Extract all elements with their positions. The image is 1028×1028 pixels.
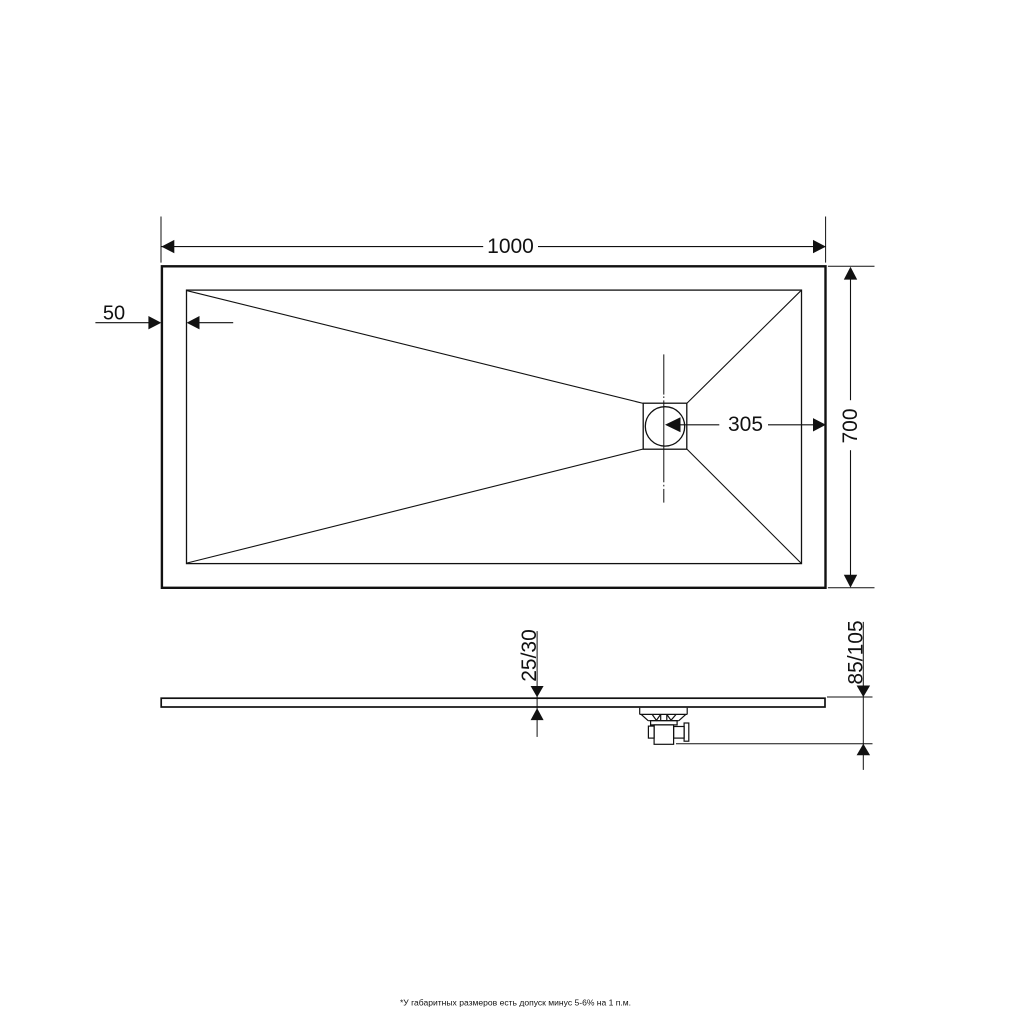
svg-text:305: 305 [728,413,763,436]
svg-text:85/105: 85/105 [845,620,868,684]
svg-text:50: 50 [103,303,125,325]
svg-text:700: 700 [839,408,862,443]
svg-text:*У габаритных размеров есть до: *У габаритных размеров есть допуск минус… [400,997,631,1007]
svg-text:25/30: 25/30 [518,629,541,682]
svg-text:1000: 1000 [487,235,534,258]
